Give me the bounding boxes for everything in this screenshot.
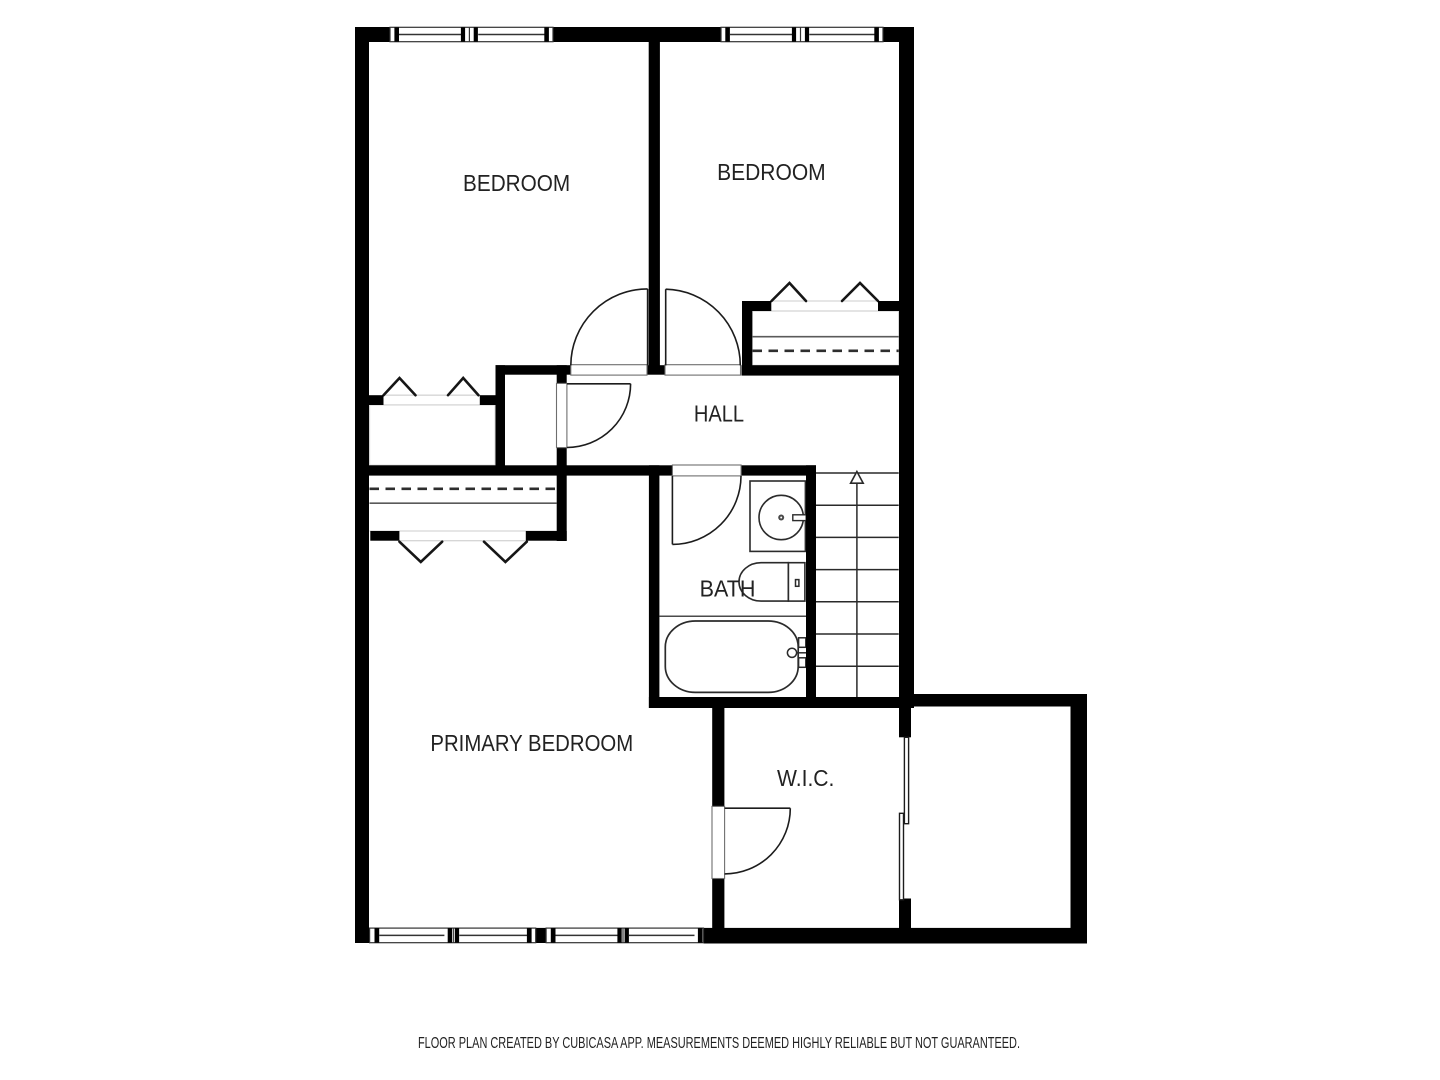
- svg-text:PRIMARY BEDROOM: PRIMARY BEDROOM: [430, 730, 633, 756]
- svg-text:FLOOR PLAN CREATED BY CUBICASA: FLOOR PLAN CREATED BY CUBICASA APP. MEAS…: [418, 1034, 1020, 1052]
- svg-text:BATH: BATH: [700, 575, 756, 601]
- svg-text:BEDROOM: BEDROOM: [463, 170, 570, 196]
- svg-text:BEDROOM: BEDROOM: [717, 159, 826, 185]
- svg-text:W.I.C.: W.I.C.: [777, 765, 835, 791]
- svg-text:HALL: HALL: [694, 400, 744, 426]
